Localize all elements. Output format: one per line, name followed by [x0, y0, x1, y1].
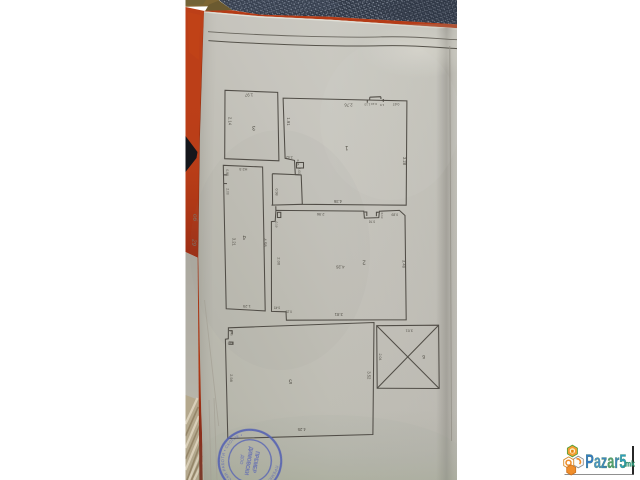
svg-text:29: 29 — [190, 238, 197, 247]
svg-text:0.19: 0.19 — [275, 222, 279, 228]
svg-text:.mk: .mk — [623, 459, 635, 469]
svg-text:4.58: 4.58 — [262, 238, 267, 247]
svg-text:6: 6 — [422, 353, 425, 359]
svg-text:1.97: 1.97 — [244, 93, 253, 98]
svg-text:3.28: 3.28 — [402, 157, 407, 166]
svg-text:об: об — [191, 214, 198, 222]
svg-text:2.06: 2.06 — [277, 257, 282, 266]
svg-text:1.25: 1.25 — [242, 304, 251, 309]
svg-text:2.04: 2.04 — [378, 354, 382, 361]
svg-text:0.45: 0.45 — [274, 305, 280, 309]
svg-text:0.98: 0.98 — [225, 169, 229, 176]
svg-text:2.76: 2.76 — [344, 103, 353, 108]
svg-text:1.91: 1.91 — [286, 117, 291, 126]
svg-text:3.52: 3.52 — [367, 371, 372, 380]
svg-text:4.36: 4.36 — [333, 199, 342, 204]
svg-text:3.81: 3.81 — [334, 312, 343, 317]
svg-text:0.45: 0.45 — [296, 160, 300, 166]
svg-text:2.00: 2.00 — [226, 188, 230, 195]
svg-text:0.76: 0.76 — [369, 219, 375, 223]
svg-text:0.13: 0.13 — [380, 213, 384, 219]
svg-text:0.13: 0.13 — [371, 102, 377, 106]
svg-text:3.40: 3.40 — [401, 260, 406, 269]
svg-text:0.98: 0.98 — [274, 189, 278, 196]
svg-text:0.45: 0.45 — [229, 330, 233, 336]
svg-text:2.98: 2.98 — [229, 374, 234, 383]
svg-text:2.02: 2.02 — [286, 155, 293, 159]
svg-text:2.96: 2.96 — [316, 212, 325, 217]
svg-text:H2.5: H2.5 — [239, 167, 247, 171]
svg-text:1.5: 1.5 — [380, 103, 385, 107]
svg-text:0.89: 0.89 — [391, 213, 398, 217]
svg-text:2.14: 2.14 — [228, 117, 233, 126]
svg-text:1.13: 1.13 — [364, 103, 370, 107]
svg-text:4.25: 4.25 — [297, 427, 306, 432]
svg-text:3.21: 3.21 — [231, 238, 236, 247]
svg-text:4.26: 4.26 — [335, 265, 344, 270]
svg-text:3.01: 3.01 — [406, 328, 413, 332]
svg-text:Pazar5: Pazar5 — [585, 451, 626, 472]
svg-text:0.78: 0.78 — [227, 341, 233, 345]
svg-text:0.67: 0.67 — [393, 102, 400, 106]
svg-text:0.28: 0.28 — [285, 310, 291, 314]
svg-text:2.00: 2.00 — [297, 167, 301, 174]
